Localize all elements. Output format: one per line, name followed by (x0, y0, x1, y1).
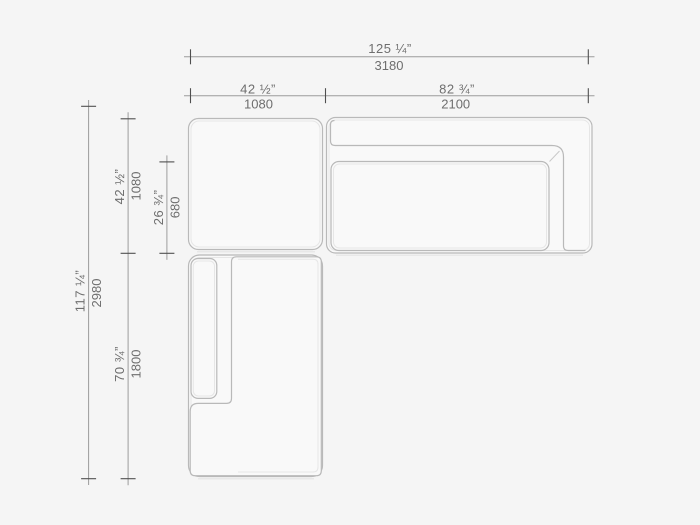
svg-text:42 ½”: 42 ½” (112, 169, 127, 205)
svg-text:1080: 1080 (129, 172, 144, 201)
svg-text:42 ½”: 42 ½” (240, 81, 276, 96)
svg-text:26 ¾”: 26 ¾” (151, 190, 166, 226)
svg-text:2980: 2980 (89, 279, 104, 308)
svg-text:2100: 2100 (441, 97, 470, 112)
svg-text:117 ¼”: 117 ¼” (73, 270, 88, 313)
svg-text:1800: 1800 (129, 350, 144, 379)
svg-text:680: 680 (167, 197, 182, 219)
svg-text:1080: 1080 (244, 97, 273, 112)
svg-text:3180: 3180 (375, 58, 404, 73)
svg-text:82 ¾”: 82 ¾” (439, 81, 475, 96)
svg-text:125 ¼”: 125 ¼” (368, 41, 411, 56)
svg-text:70 ¾”: 70 ¾” (112, 346, 127, 382)
